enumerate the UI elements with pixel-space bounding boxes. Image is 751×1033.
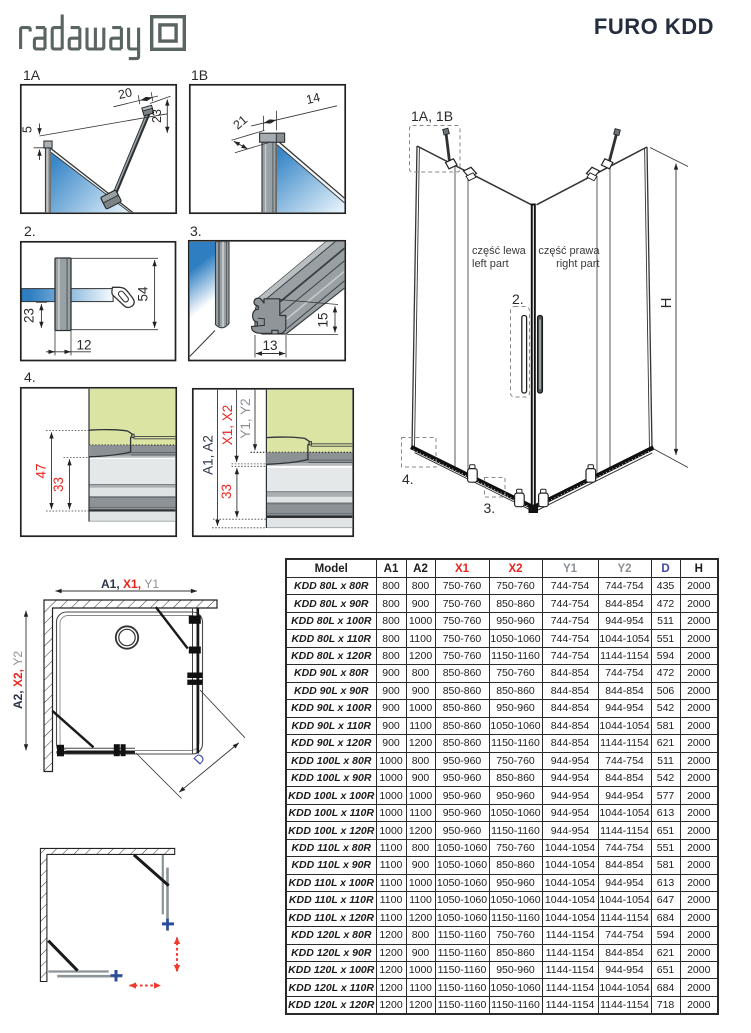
svg-text:21: 21 [231, 113, 251, 133]
svg-text:23: 23 [150, 109, 164, 123]
svg-text:14: 14 [305, 90, 322, 107]
svg-text:54: 54 [136, 286, 151, 302]
svg-text:3.: 3. [484, 500, 496, 516]
svg-text:4.: 4. [24, 369, 36, 385]
svg-text:right part: right part [556, 258, 599, 270]
svg-text:część prawa: część prawa [538, 245, 600, 257]
svg-text:13: 13 [262, 338, 277, 353]
svg-text:12: 12 [76, 338, 91, 353]
svg-text:5: 5 [21, 126, 35, 133]
svg-text:23: 23 [22, 308, 37, 323]
svg-text:A1, X1, Y1: A1, X1, Y1 [101, 577, 159, 591]
svg-text:3.: 3. [190, 223, 202, 239]
svg-text:1A, 1B: 1A, 1B [411, 108, 453, 124]
svg-text:A2, X2, Y2: A2, X2, Y2 [11, 651, 25, 709]
svg-text:4.: 4. [402, 471, 414, 487]
svg-text:33: 33 [51, 477, 66, 492]
svg-text:20: 20 [117, 85, 134, 102]
svg-text:2.: 2. [512, 291, 524, 307]
svg-text:Y1, Y2: Y1, Y2 [238, 398, 253, 438]
svg-text:left part: left part [472, 258, 509, 270]
svg-text:X1, X2: X1, X2 [220, 405, 235, 446]
svg-text:2.: 2. [24, 223, 36, 239]
svg-text:1B: 1B [191, 67, 208, 83]
svg-text:H: H [658, 298, 675, 309]
svg-text:33: 33 [219, 484, 234, 499]
svg-text:47: 47 [34, 463, 49, 478]
svg-text:część lewa: część lewa [472, 245, 527, 257]
svg-text:15: 15 [316, 312, 331, 327]
svg-text:A1, A2: A1, A2 [201, 435, 216, 475]
svg-text:1A: 1A [23, 67, 41, 83]
